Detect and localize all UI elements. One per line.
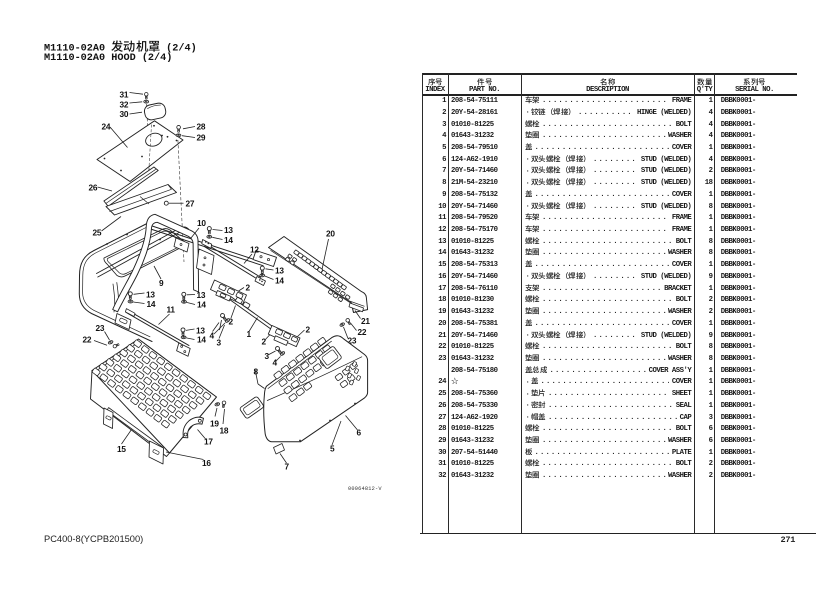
svg-text:4: 4 [273,358,278,368]
svg-text:13: 13 [146,290,155,300]
svg-text:2: 2 [262,337,267,347]
svg-text:2: 2 [246,283,251,293]
svg-text:13: 13 [197,290,206,300]
svg-text:31: 31 [120,90,129,100]
svg-text:26: 26 [89,183,98,193]
svg-text:14: 14 [275,276,284,286]
svg-text:22: 22 [83,335,92,345]
svg-text:30: 30 [120,109,129,119]
svg-text:13: 13 [224,225,233,235]
svg-text:14: 14 [224,235,233,245]
svg-text:14: 14 [197,335,206,345]
svg-text:14: 14 [147,299,156,309]
svg-text:2: 2 [306,325,311,335]
svg-text:24: 24 [102,122,111,132]
svg-text:5: 5 [330,444,335,454]
svg-text:13: 13 [275,266,284,276]
svg-text:3: 3 [217,338,222,348]
svg-text:12: 12 [250,245,259,255]
svg-text:20: 20 [326,229,335,239]
svg-text:6: 6 [357,428,362,438]
svg-text:27: 27 [186,199,195,209]
svg-text:25: 25 [93,228,102,238]
svg-text:10: 10 [197,218,206,228]
svg-text:15: 15 [117,444,126,454]
svg-text:18: 18 [220,426,229,436]
svg-text:14: 14 [197,300,206,310]
svg-text:4: 4 [210,331,215,341]
svg-text:00064812-V: 00064812-V [348,486,382,492]
svg-text:7: 7 [285,462,290,472]
svg-text:11: 11 [167,305,176,315]
svg-text:22: 22 [358,327,367,337]
svg-text:17: 17 [204,437,213,447]
svg-text:1: 1 [247,329,252,339]
svg-text:32: 32 [120,100,129,110]
svg-text:28: 28 [197,122,206,132]
svg-text:19: 19 [210,419,219,429]
svg-text:21: 21 [361,316,370,326]
svg-text:23: 23 [96,323,105,333]
svg-text:9: 9 [159,278,164,288]
svg-text:29: 29 [197,133,206,143]
svg-text:3: 3 [265,351,270,361]
